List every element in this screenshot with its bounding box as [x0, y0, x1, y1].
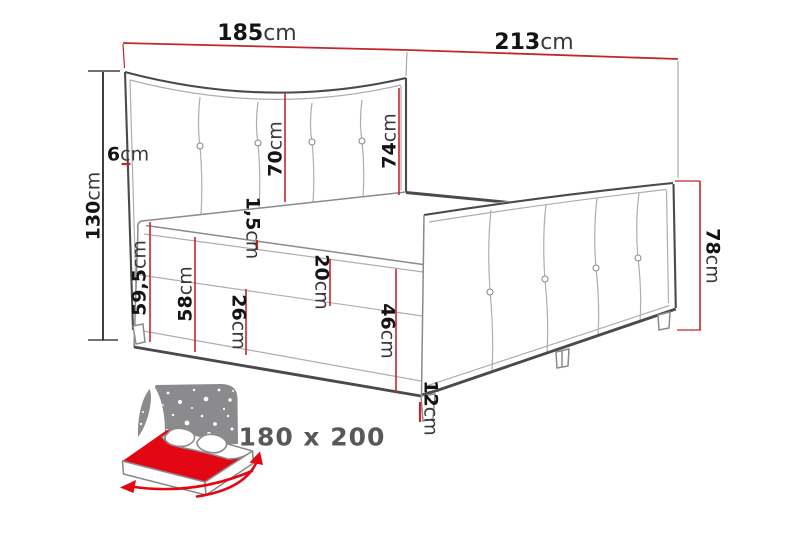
dim-label-213cm: 213cm [494, 32, 573, 54]
dim-label-78cm: 78cm [703, 228, 722, 283]
dim-label-1-5cm: 1,5cm [243, 197, 262, 260]
dim-label-74cm: 74cm [381, 113, 400, 168]
pillow-shape [165, 428, 195, 446]
pillow-shape [197, 434, 227, 453]
dim-label-20cm: 20cm [312, 254, 331, 309]
dim-label-58cm: 58cm [177, 266, 196, 321]
dim-label-59-5cm: 59,5cm [131, 240, 150, 316]
dim-label-46cm: 46cm [378, 303, 397, 358]
size-label: 180 x 200 [239, 423, 386, 452]
dim-label-26cm: 26cm [229, 294, 248, 349]
dim-label-70cm: 70cm [267, 121, 286, 176]
dim-label-130cm: 130cm [85, 172, 104, 241]
dim-label-12cm: 12cm [421, 380, 440, 435]
side-panel [422, 182, 677, 395]
bed-diagram-canvas [0, 0, 800, 533]
dim-label-6cm: 6cm [107, 146, 149, 165]
dim-label-185cm: 185cm [217, 23, 296, 45]
bed-dimension-diagram: 185cm 213cm 6cm 130cm 70cm 74cm 59,5cm 5… [0, 0, 800, 533]
